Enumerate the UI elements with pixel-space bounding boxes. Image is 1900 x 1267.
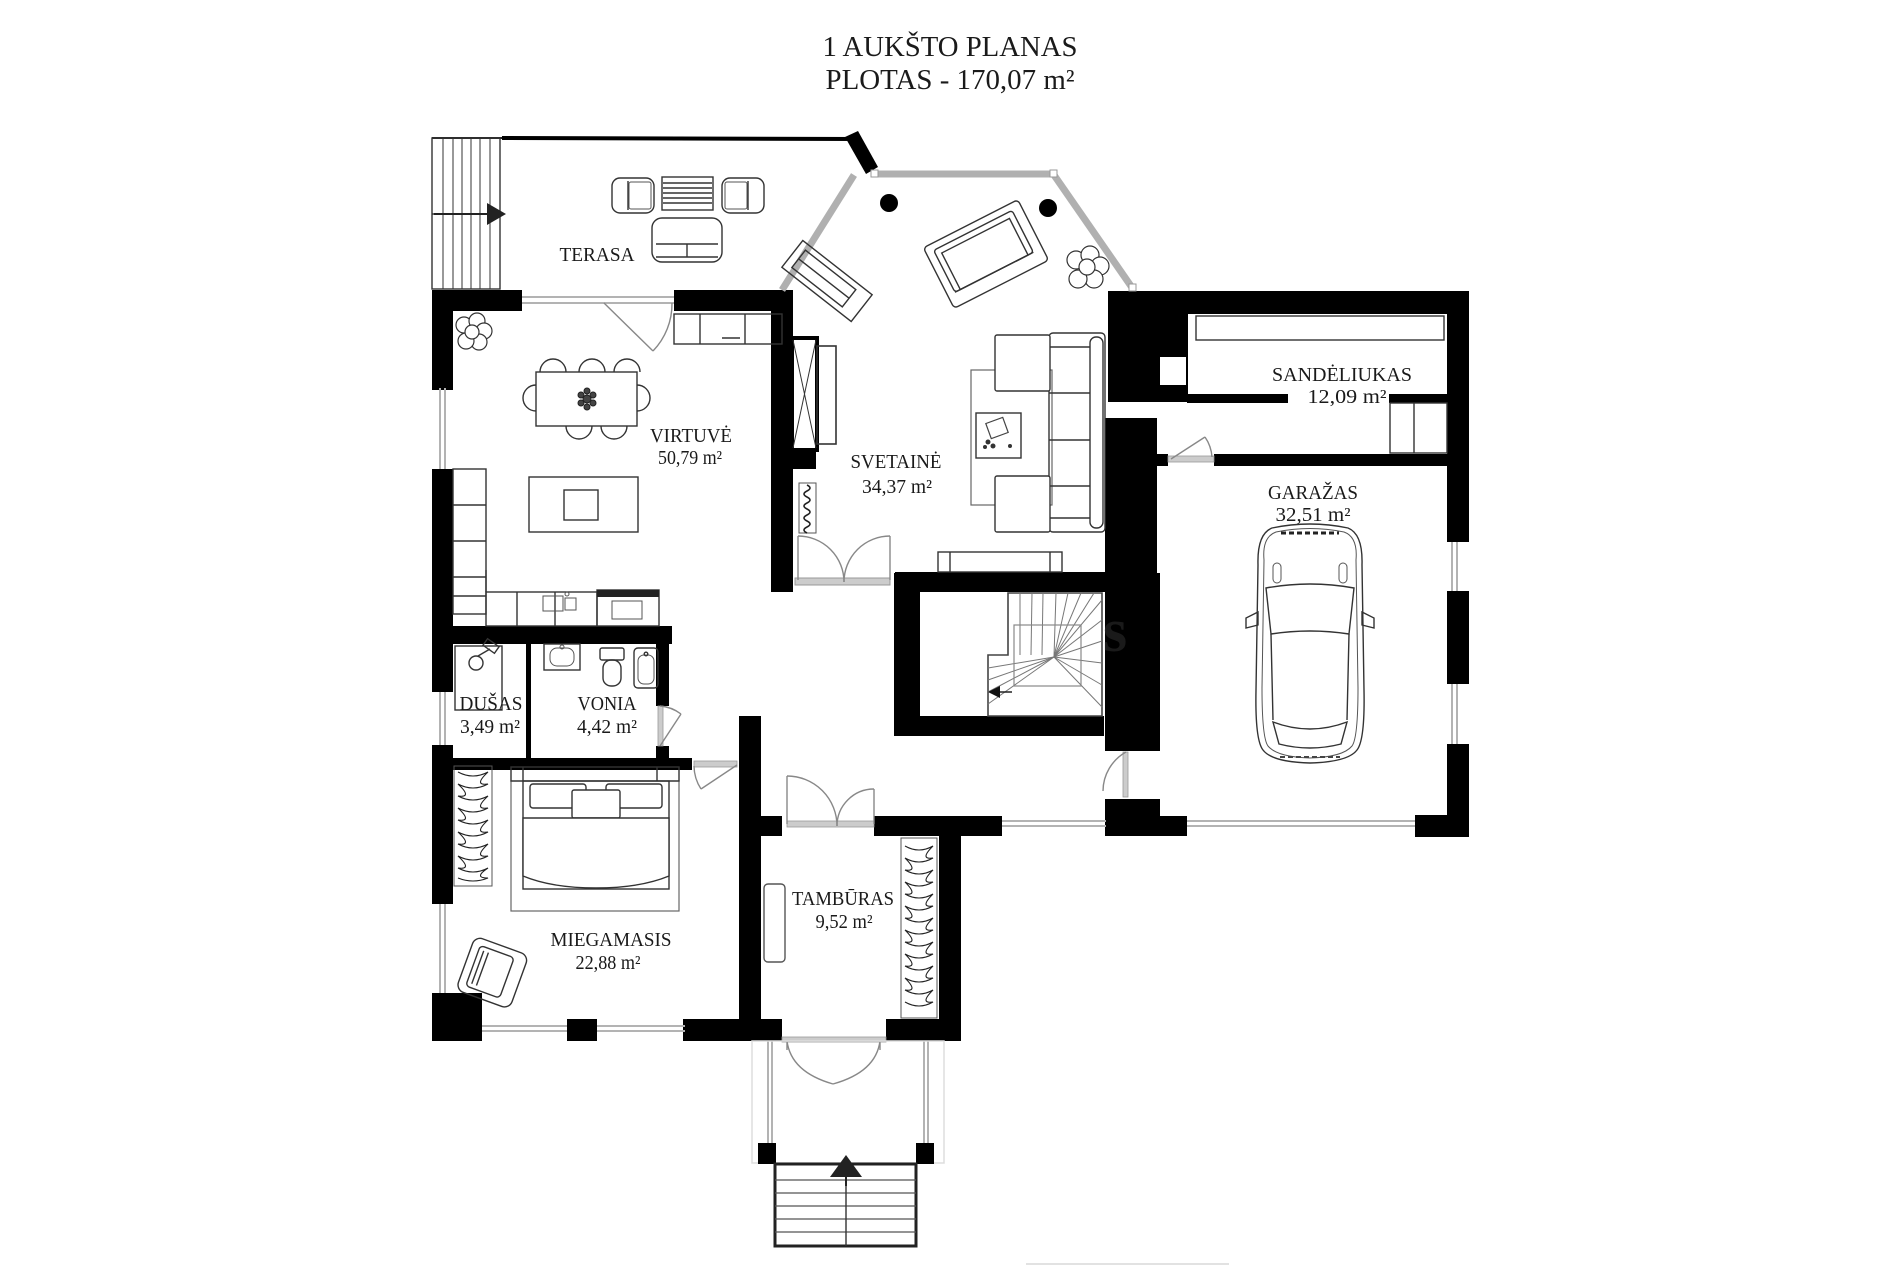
svg-text:VONIA: VONIA <box>578 693 638 715</box>
svg-text:DUŠAS: DUŠAS <box>460 691 523 715</box>
svg-text:GARAŽAS: GARAŽAS <box>1268 481 1358 504</box>
svg-text:SVETAINĖ: SVETAINĖ <box>851 450 942 473</box>
svg-text:3,49 m²: 3,49 m² <box>460 716 520 738</box>
svg-text:VIRTUVĖ: VIRTUVĖ <box>650 424 732 447</box>
svg-text:SANDĖLIUKAS: SANDĖLIUKAS <box>1272 363 1412 386</box>
svg-text:12,09 m²: 12,09 m² <box>1308 386 1387 408</box>
svg-text:50,79 m²: 50,79 m² <box>658 447 722 469</box>
svg-text:PLOTAS - 170,07 m²: PLOTAS - 170,07 m² <box>826 64 1075 96</box>
svg-text:4,42 m²: 4,42 m² <box>577 716 637 738</box>
svg-text:32,51 m²: 32,51 m² <box>1276 504 1351 526</box>
svg-text:MIEGAMASIS: MIEGAMASIS <box>551 929 672 951</box>
svg-text:TERASA: TERASA <box>560 244 636 266</box>
svg-text:34,37 m²: 34,37 m² <box>862 476 932 498</box>
svg-text:22,88 m²: 22,88 m² <box>576 952 641 974</box>
svg-text:s: s <box>1103 597 1127 665</box>
svg-text:1 AUKŠTO PLANAS: 1 AUKŠTO PLANAS <box>823 30 1078 63</box>
svg-text:9,52 m²: 9,52 m² <box>816 911 873 933</box>
svg-text:TAMBŪRAS: TAMBŪRAS <box>792 888 894 910</box>
